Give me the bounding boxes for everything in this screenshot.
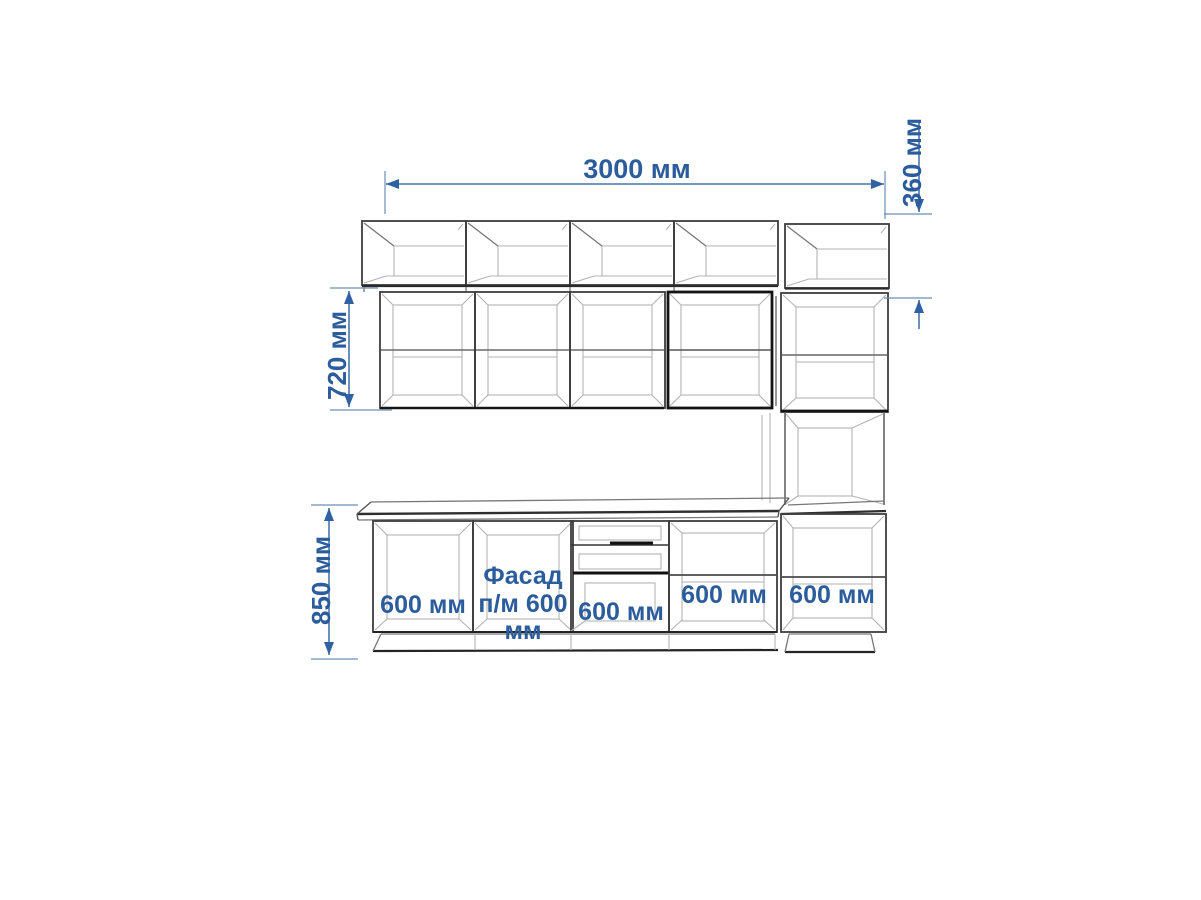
svg-text:Фасад: Фасад: [483, 562, 562, 590]
wall-cabinet-row: [380, 292, 776, 408]
countertop: [357, 498, 789, 520]
dimension-wall-height: 720 мм: [322, 288, 392, 410]
kitchen-elevation-svg: 3000 мм 360 мм 720 мм 850 мм 600 мм Фаса…: [0, 0, 1201, 900]
label-base-cabinet-3: 600 мм: [578, 598, 664, 626]
upper-shelf-row: [362, 221, 889, 292]
tall-column-plinth: [785, 634, 875, 652]
label-tall-column-base: 600 мм: [789, 581, 875, 609]
plinth: [373, 634, 778, 651]
dimension-upper-height: 360 мм: [884, 118, 932, 329]
dimension-total-width: 3000 мм: [385, 154, 885, 219]
tall-column-base-cabinet: [781, 514, 886, 632]
wall-cabinet-door: [668, 292, 772, 408]
kitchen-drawing: 3000 мм 360 мм 720 мм 850 мм 600 мм Фаса…: [0, 0, 1201, 900]
tall-column-niche: [762, 412, 884, 505]
label-base-cabinet-4: 600 мм: [681, 581, 767, 609]
svg-text:мм: мм: [505, 617, 542, 645]
dimension-base-height: 850 мм: [306, 505, 358, 659]
label-base-cabinet-1: 600 мм: [380, 591, 466, 619]
dimension-total-width-label: 3000 мм: [583, 154, 691, 184]
dimension-base-height-label: 850 мм: [306, 536, 336, 625]
dimension-wall-height-label: 720 мм: [322, 311, 352, 400]
dimension-upper-height-label: 360 мм: [897, 118, 927, 207]
svg-text:п/м 600: п/м 600: [478, 590, 567, 618]
